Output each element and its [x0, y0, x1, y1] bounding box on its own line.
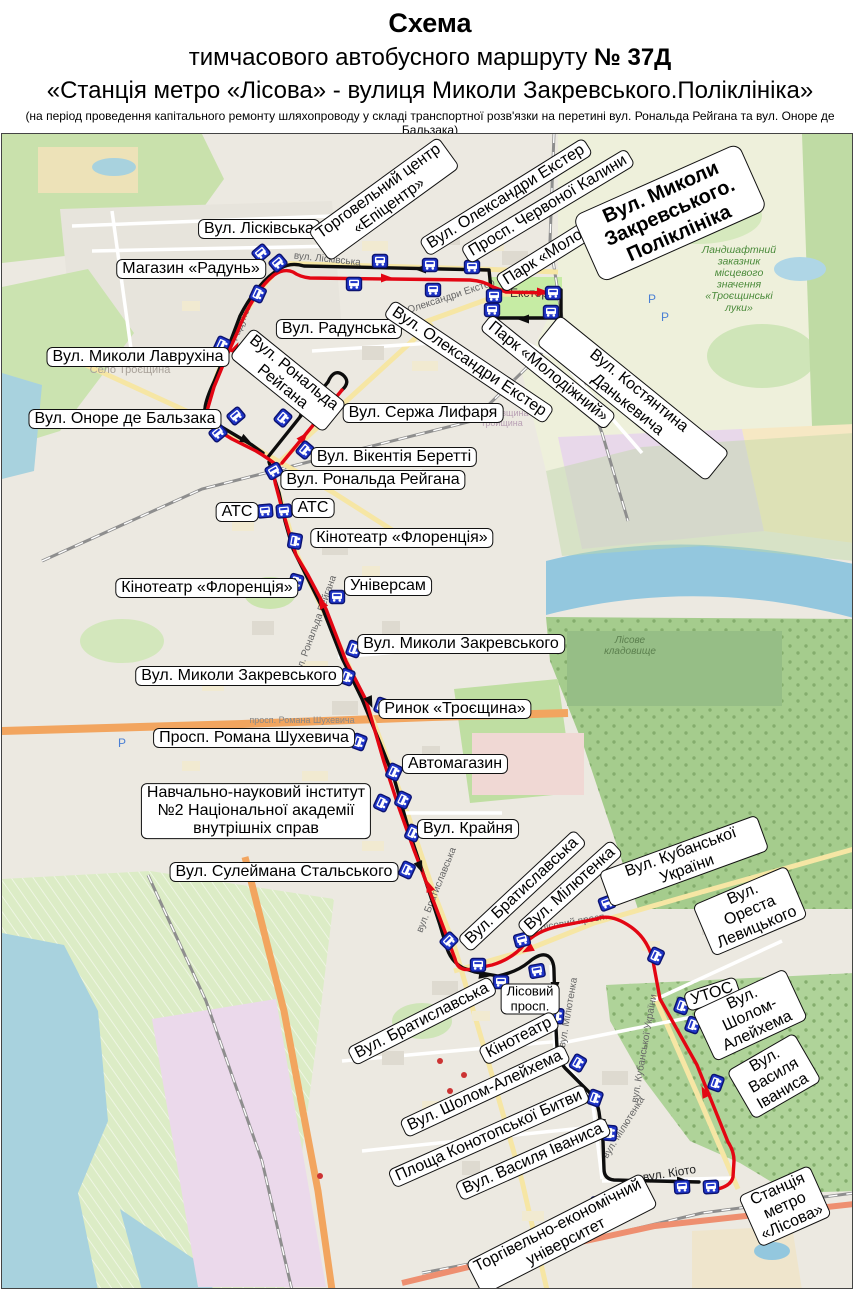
- bus-stop-icon: [276, 504, 292, 518]
- market-area: [692, 1226, 802, 1289]
- bus-stop-icon: [591, 1196, 607, 1210]
- building: [362, 241, 388, 251]
- map-canvas: Радунськавул. ЛісківськаЕкстерОлександри…: [2, 134, 853, 1289]
- park-area: [632, 188, 762, 244]
- route-endpoints: «Станція метро «Лісова» - вулиця Миколи …: [0, 77, 860, 105]
- bus-stop-icon: [288, 573, 304, 591]
- cemetery-area: [567, 631, 782, 706]
- building: [362, 841, 384, 851]
- building: [422, 1101, 448, 1111]
- street-name-text: P: [648, 292, 656, 306]
- building: [232, 791, 254, 805]
- street-name-text: Вигурівщинатройщина: [476, 408, 529, 428]
- market-area: [472, 733, 584, 795]
- bus-stop-icon: [550, 1008, 564, 1024]
- building: [332, 701, 358, 715]
- street-name-text: P: [661, 310, 669, 324]
- bus-stop-icon: [426, 284, 441, 297]
- building: [442, 231, 460, 245]
- building: [382, 621, 400, 635]
- route-number: № 37Д: [594, 44, 671, 71]
- building: [382, 1051, 404, 1065]
- park-area: [244, 577, 296, 609]
- bus-stop-icon: [528, 963, 545, 978]
- building: [432, 981, 458, 995]
- bus-stop-icon: [674, 1180, 690, 1194]
- bus-stop-icon: [487, 290, 502, 303]
- page-title: Схема: [0, 8, 860, 39]
- building: [472, 1011, 490, 1021]
- bus-stop-icon: [494, 976, 509, 989]
- subtitle-text: тимчасового автобусного маршруту: [189, 44, 594, 71]
- pond: [92, 158, 136, 176]
- building: [182, 761, 200, 771]
- bus-stop-icon: [485, 304, 500, 317]
- building: [252, 621, 274, 635]
- pond: [754, 1242, 790, 1260]
- building: [422, 746, 440, 760]
- building: [362, 346, 384, 360]
- title-block: Схема тимчасового автобусного маршруту №…: [0, 0, 860, 133]
- bus-stop-icon: [347, 278, 362, 291]
- bus-stop-icon: [703, 1180, 719, 1194]
- building: [702, 921, 724, 935]
- building: [232, 521, 254, 531]
- building: [322, 541, 348, 555]
- bus-stop-icon: [330, 591, 345, 604]
- street-name-text: просп. Романа Шухевича: [249, 715, 354, 725]
- building: [202, 681, 224, 691]
- bus-stop-icon: [544, 306, 559, 319]
- bus-stop-icon: [603, 1125, 617, 1141]
- bus-stop-icon: [287, 532, 302, 549]
- street-name-text: Село Троєщина: [90, 364, 172, 376]
- building: [482, 241, 504, 251]
- building: [182, 301, 200, 311]
- bus-stop-icon: [373, 255, 388, 268]
- park-area: [707, 324, 817, 388]
- building: [412, 361, 438, 371]
- bus-stop-icon: [546, 287, 561, 300]
- bus-stop-icon: [513, 932, 531, 948]
- bus-stop-icon: [471, 959, 486, 972]
- building: [502, 251, 528, 265]
- building: [522, 1211, 544, 1221]
- page-subtitle: тимчасового автобусного маршруту № 37Д: [0, 44, 860, 72]
- park-area: [80, 619, 164, 663]
- route-schema-page: Схема тимчасового автобусного маршруту №…: [0, 0, 860, 1291]
- reserve-area: [522, 134, 853, 471]
- map-area: Радунськавул. ЛісківськаЕкстерОлександри…: [1, 133, 853, 1289]
- bus-stop-icon: [257, 504, 273, 518]
- building: [322, 321, 340, 331]
- street-name-text: P: [118, 736, 126, 750]
- bus-stop-icon: [465, 261, 480, 274]
- park-area: [392, 1003, 452, 1039]
- building: [302, 771, 328, 781]
- bus-stop-icon: [423, 259, 438, 272]
- building: [462, 1161, 480, 1175]
- pond: [774, 257, 826, 281]
- building: [602, 1071, 628, 1085]
- building: [362, 566, 380, 576]
